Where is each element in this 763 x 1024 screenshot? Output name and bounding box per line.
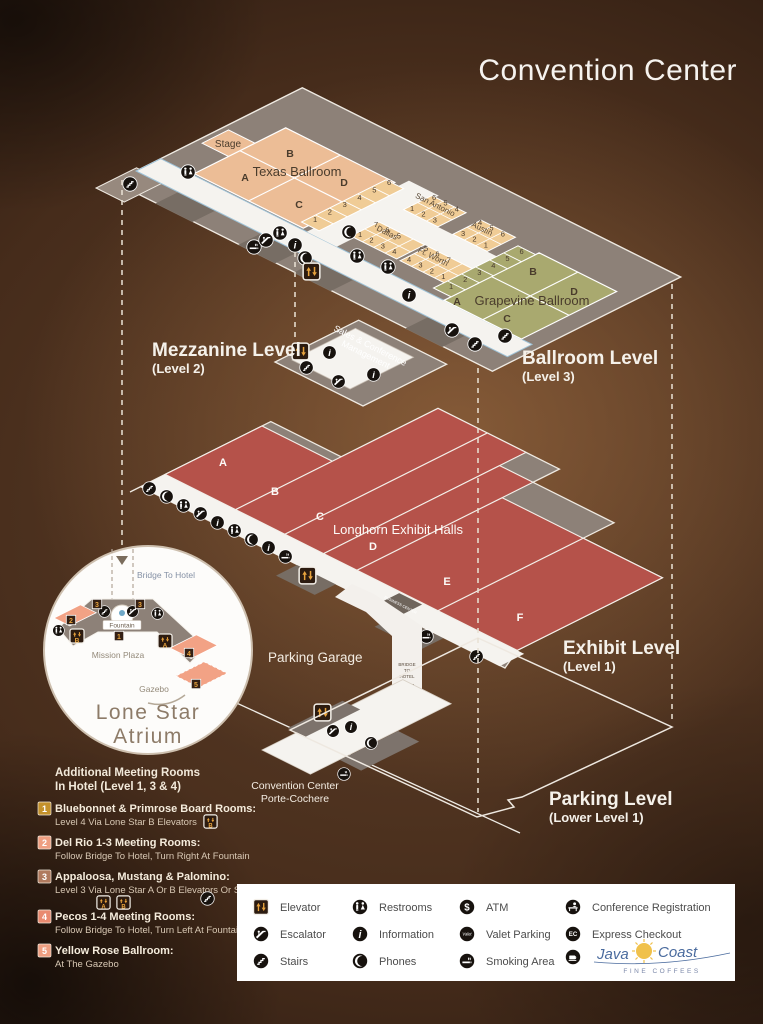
texas-ballroom-label: Texas Ballroom [253,164,342,179]
information-icon [211,516,225,530]
marker-1: 1 [117,634,121,641]
stairs-icon [300,361,314,375]
information-icon [345,721,358,734]
brand-subtitle: FINE COFFEES [623,968,700,975]
svg-text:Bluebonnet & Primrose Board Ro: Bluebonnet & Primrose Board Rooms: [55,803,256,815]
svg-text:(Lower Level 1): (Lower Level 1) [549,810,644,825]
svg-text:A: A [101,905,106,911]
mezzanine-level-label: Mezzanine Level (Level 2) [152,340,301,376]
phones-icon [342,225,356,239]
svg-text:B: B [121,905,126,911]
svg-text:Exhibit Level: Exhibit Level [563,638,680,659]
mission-plaza-label: Mission Plaza [92,650,145,660]
fountain-label: Fountain [109,623,135,630]
marker-3: 3 [138,602,142,609]
convention-center-map: i $ Valet EC [0,0,763,1024]
marker-2: 2 [69,618,73,625]
svg-text:(Level 1): (Level 1) [563,659,616,674]
svg-text:Yellow Rose Ballroom:: Yellow Rose Ballroom: [55,945,174,957]
legend-conference: Conference Registration [592,902,711,914]
list-item-3: 3 Appaloosa, Mustang & Palomino: Level 3… [38,870,258,911]
svg-text:Mezzanine Level: Mezzanine Level [152,340,301,361]
elevator-icon [303,263,320,280]
hall-d-label: D [369,541,377,553]
svg-text:4: 4 [42,912,47,922]
elevator-icon [254,900,269,915]
information-icon [288,238,302,252]
stairs-icon [498,329,512,343]
svg-text:B: B [208,824,213,830]
svg-text:2: 2 [42,838,47,848]
valet-parking-icon [459,926,474,941]
restrooms-icon [381,260,395,274]
information-icon [323,346,337,360]
gazebo-label: Gazebo [139,684,169,694]
list-item-1: 1 Bluebonnet & Primrose Board Rooms: Lev… [38,802,256,830]
hotel-rooms-list: Additional Meeting Rooms In Hotel (Level… [38,767,258,970]
information-icon [262,541,276,555]
conference-registration-icon [565,899,580,914]
exhibit-level-label: Exhibit Level (Level 1) [563,638,680,674]
restrooms-icon [177,499,191,513]
page-title: Convention Center [478,54,737,87]
stage-label: Stage [215,139,242,150]
svg-text:(Level 2): (Level 2) [152,361,205,376]
svg-text:B: B [75,638,80,645]
svg-text:3: 3 [42,872,47,882]
svg-text:1: 1 [42,804,47,814]
parking-garage-label: Parking Garage [268,650,363,665]
restrooms-icon [152,608,164,620]
legend-valet: Valet Parking [486,929,551,941]
marker-4: 4 [187,651,191,658]
elevator-icon [314,704,331,721]
legend-information: Information [379,929,434,941]
stairs-icon [201,892,215,906]
hall-c-label: C [316,511,324,523]
porte-cochere-label-1: Convention Center [251,780,339,792]
restrooms-icon [181,165,195,179]
svg-text:Del Rio 1-3 Meeting Rooms:: Del Rio 1-3 Meeting Rooms: [55,837,200,849]
grapevine-section-a: A [453,296,461,308]
svg-text:Level 3 Via Lone Star A Or B E: Level 3 Via Lone Star A Or B Elevators O… [55,885,258,896]
information-icon [367,368,381,382]
atrium-title-2: Atrium [113,725,183,748]
legend-express: Express Checkout [592,929,681,941]
svg-text:Level 4 Via Lone Star B Elevat: Level 4 Via Lone Star B Elevators [55,817,197,828]
smoking-icon [459,953,474,968]
phones-icon [365,737,378,750]
texas-section-d: D [340,177,348,189]
restrooms-icon [350,249,364,263]
texas-section-c: C [295,199,303,211]
parking-level-label: Parking Level (Lower Level 1) [549,789,673,825]
svg-text:Appaloosa, Mustang & Palomino:: Appaloosa, Mustang & Palomino: [55,871,230,883]
porte-cochere-plan: Convention Center Porte-Cochere [230,680,520,833]
escalator-icon [327,725,340,738]
atrium-title-1: Lone Star [96,701,201,724]
stairs-icon [468,337,482,351]
hall-e-label: E [443,576,450,588]
stairs-icon [253,953,268,968]
atrium-elevator-a: A [158,634,172,650]
bridge-to-hotel-label: Bridge To Hotel [137,570,195,580]
escalator-icon [332,375,346,389]
list-item-5: 5 Yellow Rose Ballroom: At The Gazebo [38,944,174,970]
coffee-cup-icon [565,949,580,964]
escalator-icon [253,926,268,941]
restrooms-icon [273,226,287,240]
legend-stairs: Stairs [280,956,309,968]
svg-text:Follow Bridge To Hotel, Turn L: Follow Bridge To Hotel, Turn Left At Fou… [55,925,243,936]
smoking-icon [338,768,351,781]
restrooms-icon [352,899,367,914]
phones-icon [352,953,367,968]
lone-star-atrium: Bridge To Hotel Fountain Gazebo Mission … [44,546,252,754]
phones-icon [160,490,174,504]
restrooms-icon [53,625,65,637]
atrium-elevator-b: B [70,629,84,645]
legend-escalator: Escalator [280,929,326,941]
list-item-2: 2 Del Rio 1-3 Meeting Rooms: Follow Brid… [38,836,250,862]
escalator-icon [445,323,459,337]
information-icon [402,288,416,302]
information-icon [352,926,367,941]
svg-text:Pecos 1-4 Meeting Rooms:: Pecos 1-4 Meeting Rooms: [55,911,195,923]
svg-text:(Level 3): (Level 3) [522,369,575,384]
grapevine-section-d: D [570,286,578,298]
smoking-icon [279,550,293,564]
list-heading-2: In Hotel (Level 1, 3 & 4) [55,781,181,793]
legend-phones: Phones [379,956,417,968]
restrooms-icon [228,524,242,538]
brand-script-2: Coast [658,944,698,961]
escalator-icon [194,507,208,521]
escalator-icon [259,233,273,247]
list-item-4: 4 Pecos 1-4 Meeting Rooms: Follow Bridge… [38,910,243,936]
fountain-icon [119,610,125,616]
legend-restrooms: Restrooms [379,902,433,914]
stairs-icon [470,650,484,664]
porte-cochere-label-2: Porte-Cochere [261,793,329,805]
svg-text:Parking Level: Parking Level [549,789,673,810]
svg-text:Follow Bridge To Hotel, Turn R: Follow Bridge To Hotel, Turn Right At Fo… [55,851,250,862]
brand-script-1: Java [596,946,629,963]
marker-3: 3 [95,602,99,609]
atm-icon [459,899,474,914]
grapevine-section-c: C [503,313,511,325]
express-checkout-icon [565,926,580,941]
legend: Elevator Escalator Stairs Restrooms Info… [237,884,735,981]
svg-text:A: A [163,643,168,650]
legend-elevator: Elevator [280,902,321,914]
elevator-icon [299,567,316,584]
hall-f-label: F [517,612,524,624]
legend-smoking: Smoking Area [486,956,555,968]
list-heading-1: Additional Meeting Rooms [55,767,200,779]
grapevine-section-b: B [529,266,537,278]
longhorn-halls-label: Longhorn Exhibit Halls [333,522,464,537]
texas-section-a: A [241,172,249,184]
map-canvas: i $ Valet EC [0,0,763,1024]
hall-b-label: B [271,486,279,498]
svg-text:5: 5 [42,946,47,956]
svg-text:At The Gazebo: At The Gazebo [55,959,119,970]
stairs-icon [143,482,157,496]
hall-a-label: A [219,457,227,469]
phones-icon [245,533,259,547]
stairs-icon [123,177,137,191]
ballroom-level-plan: Stage Texas Ballroom A B C D 123456 San … [96,88,681,371]
ballroom-level-label: Ballroom Level (Level 3) [522,348,658,384]
marker-5: 5 [194,682,198,689]
svg-text:Ballroom Level: Ballroom Level [522,348,658,369]
texas-section-b: B [286,148,294,160]
svg-text:BRIDGE: BRIDGE [398,662,415,667]
legend-atm: ATM [486,902,508,914]
